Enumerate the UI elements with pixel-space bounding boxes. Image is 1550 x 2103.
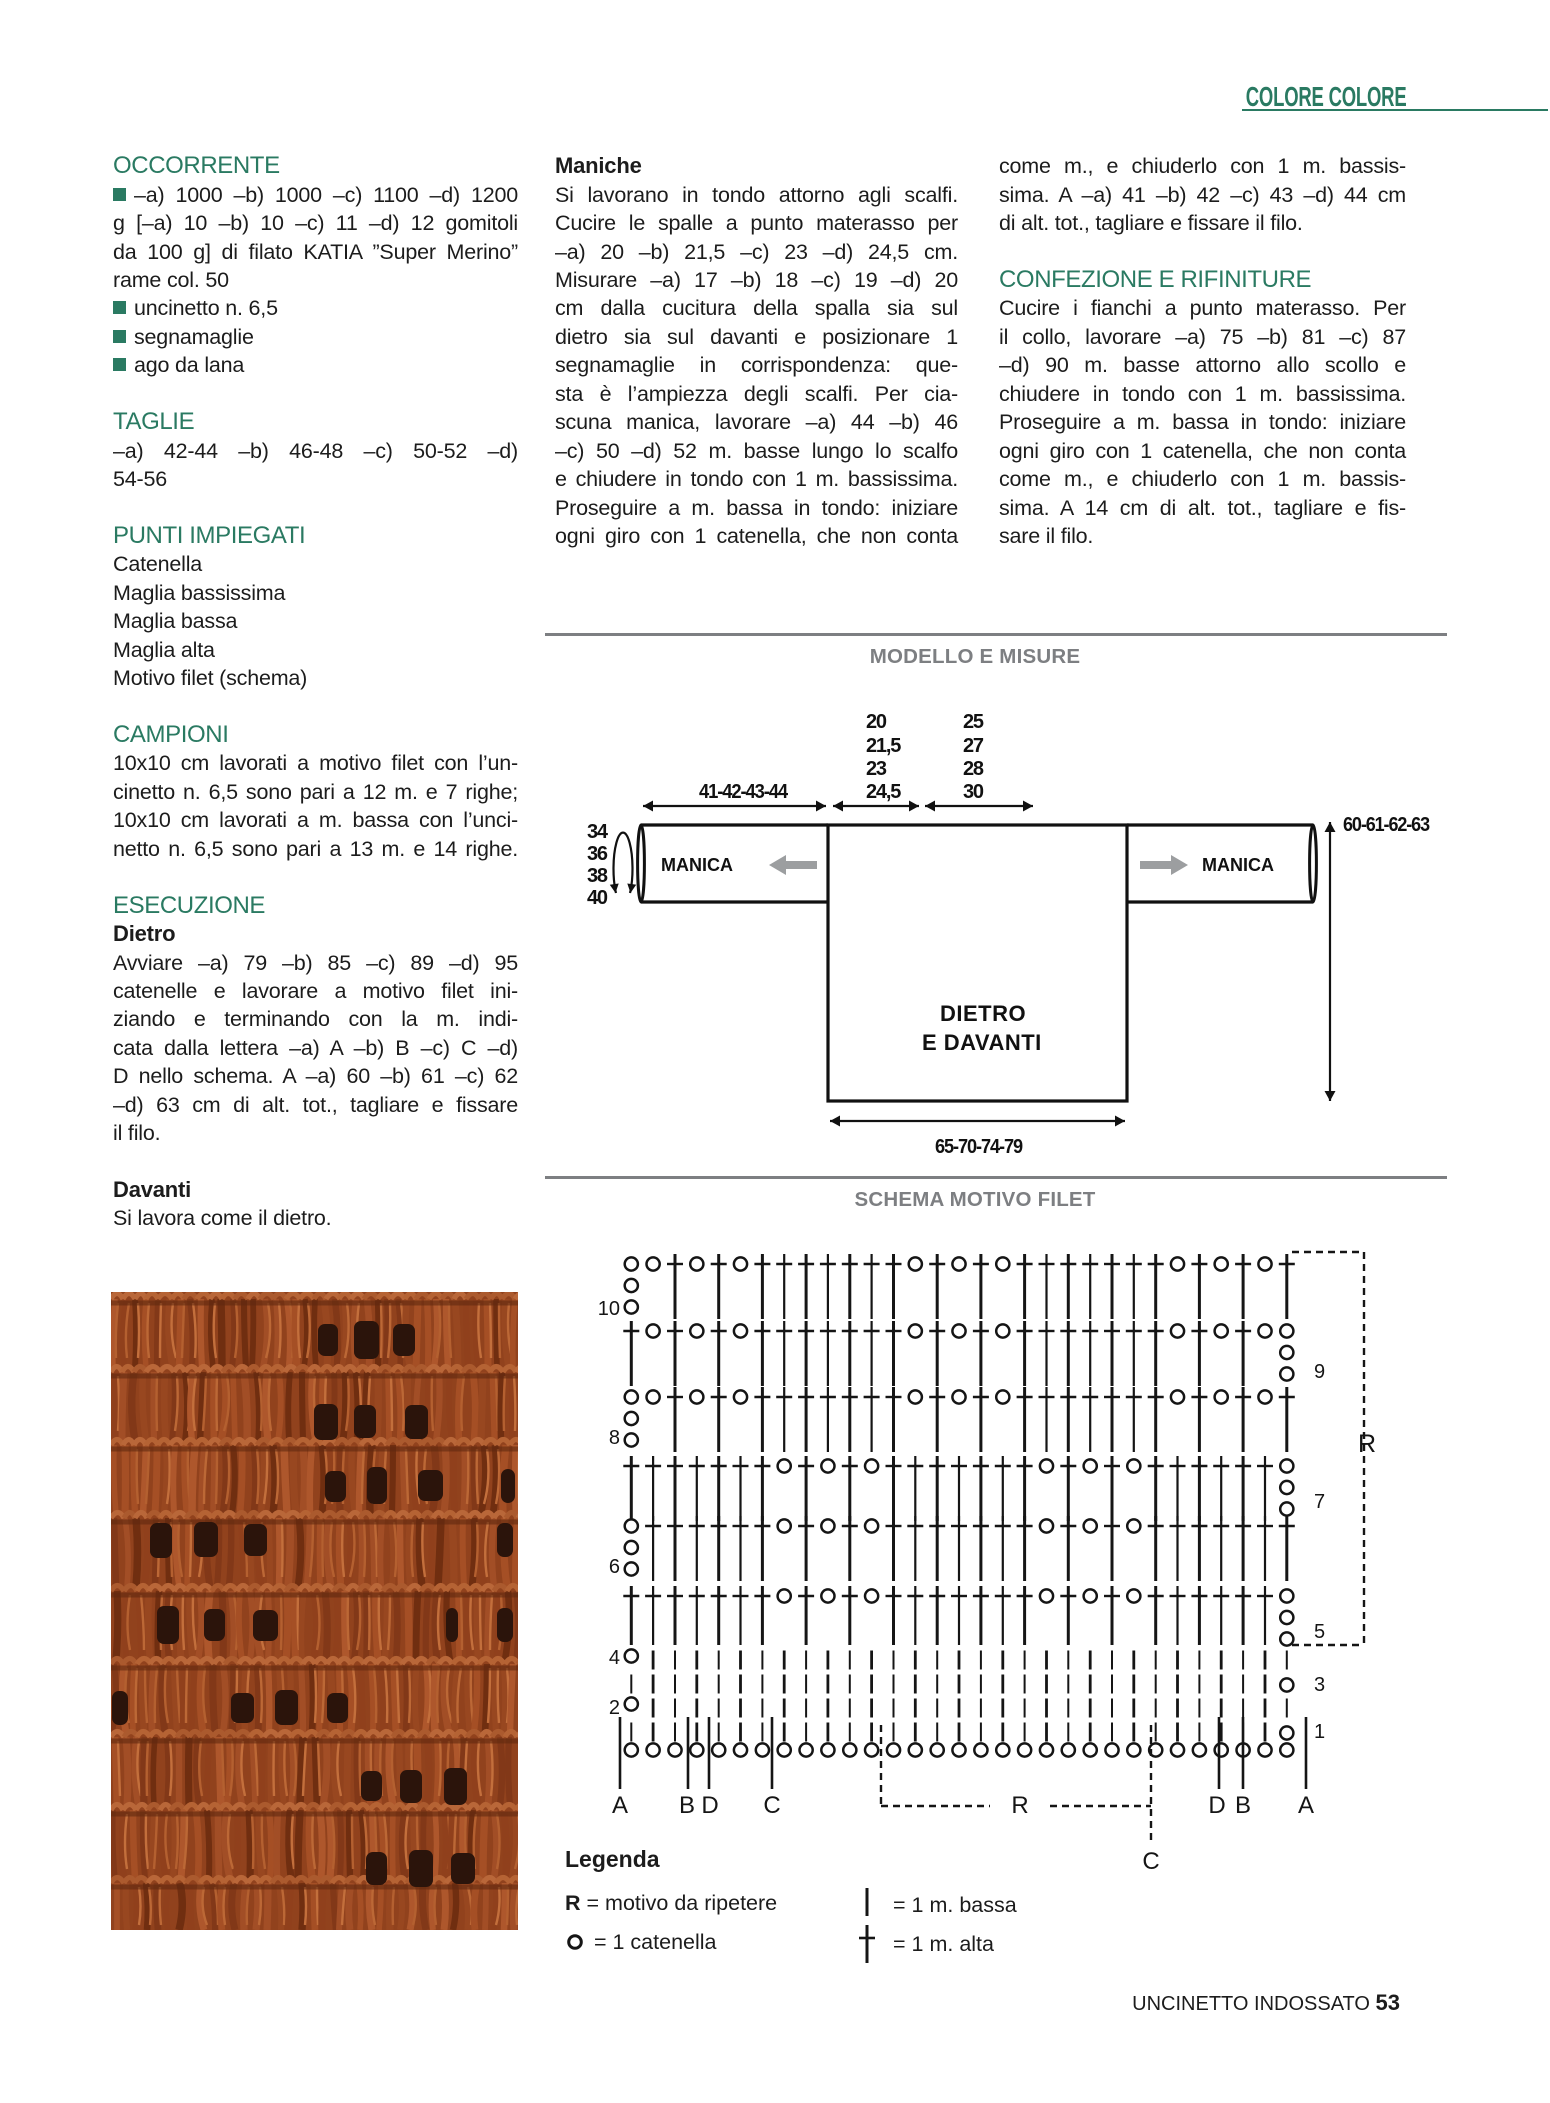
svg-text:28: 28 — [963, 758, 984, 780]
svg-text:30: 30 — [963, 781, 984, 803]
svg-text:4: 4 — [609, 1647, 620, 1669]
svg-text:MANICA: MANICA — [1202, 855, 1274, 875]
svg-text:D: D — [1208, 1792, 1225, 1819]
svg-text:R: R — [1358, 1430, 1376, 1458]
svg-text:6: 6 — [609, 1556, 620, 1578]
svg-text:A: A — [1298, 1792, 1314, 1819]
svg-text:36: 36 — [587, 843, 608, 865]
svg-text:DIETRO: DIETRO — [940, 1001, 1026, 1026]
svg-text:41-42-43-44: 41-42-43-44 — [699, 781, 789, 803]
svg-text:MANICA: MANICA — [661, 855, 733, 875]
svg-text:B: B — [1235, 1792, 1251, 1819]
svg-text:10: 10 — [598, 1298, 620, 1320]
svg-text:R: R — [1011, 1792, 1028, 1819]
svg-text:60-61-62-63: 60-61-62-63 — [1343, 814, 1430, 836]
svg-text:7: 7 — [1314, 1491, 1325, 1513]
svg-text:23: 23 — [866, 758, 887, 780]
svg-text:3: 3 — [1314, 1674, 1325, 1696]
svg-text:38: 38 — [587, 865, 608, 887]
svg-text:9: 9 — [1314, 1361, 1325, 1383]
svg-text:B: B — [679, 1792, 695, 1819]
svg-text:2: 2 — [609, 1697, 620, 1719]
svg-text:A: A — [612, 1792, 628, 1819]
svg-text:24,5: 24,5 — [866, 781, 901, 803]
svg-text:40: 40 — [587, 887, 608, 909]
svg-text:5: 5 — [1314, 1621, 1325, 1643]
svg-text:21,5: 21,5 — [866, 735, 901, 757]
svg-text:34: 34 — [587, 821, 609, 843]
svg-text:C: C — [1142, 1848, 1159, 1875]
svg-text:65-70-74-79: 65-70-74-79 — [935, 1136, 1023, 1158]
svg-text:C: C — [763, 1792, 780, 1819]
svg-text:D: D — [701, 1792, 718, 1819]
svg-text:20: 20 — [866, 711, 887, 733]
svg-text:27: 27 — [963, 735, 984, 757]
svg-text:E DAVANTI: E DAVANTI — [922, 1030, 1042, 1055]
svg-text:8: 8 — [609, 1427, 620, 1449]
svg-text:1: 1 — [1314, 1721, 1325, 1743]
svg-text:25: 25 — [963, 711, 984, 733]
